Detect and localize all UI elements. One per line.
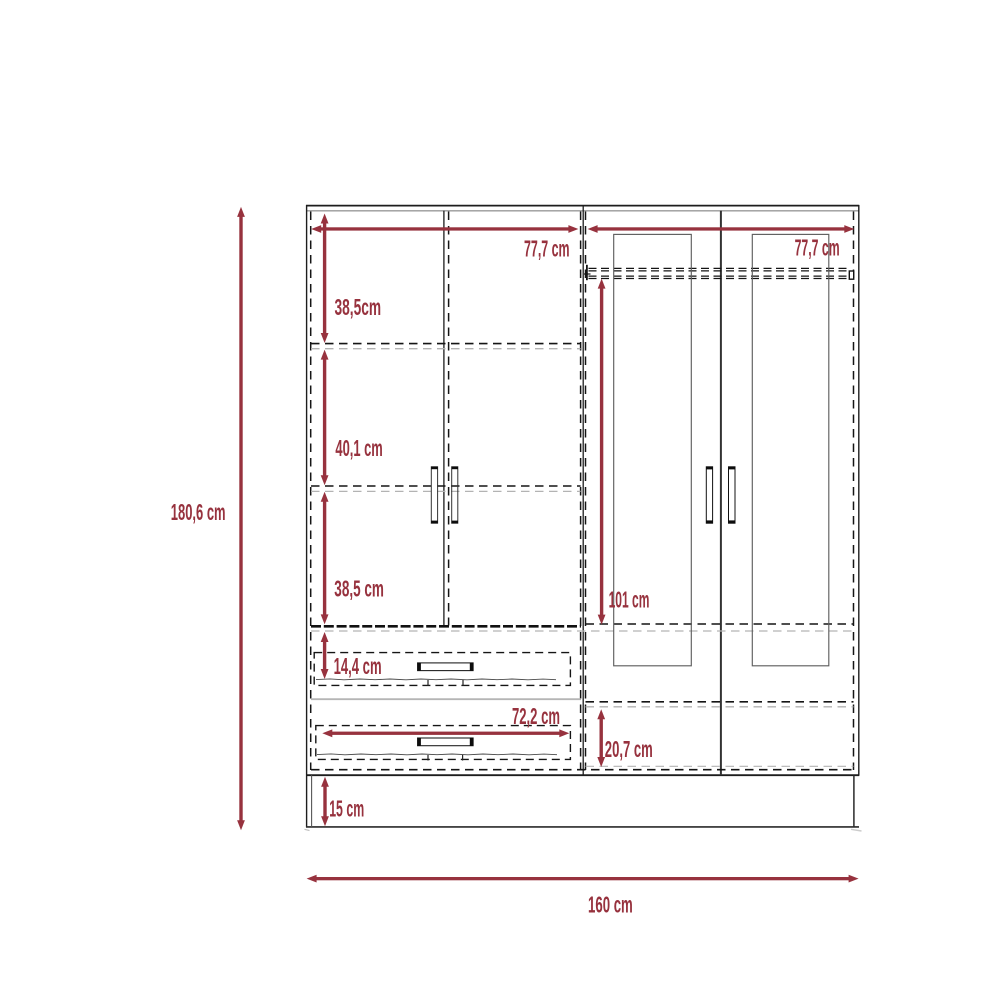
svg-text:160 cm: 160 cm bbox=[588, 891, 633, 917]
svg-text:14,4 cm: 14,4 cm bbox=[334, 653, 382, 679]
svg-text:38,5cm: 38,5cm bbox=[335, 294, 382, 320]
svg-text:20,7 cm: 20,7 cm bbox=[605, 736, 653, 762]
svg-text:77,7 cm: 77,7 cm bbox=[524, 235, 570, 261]
svg-text:72,2 cm: 72,2 cm bbox=[512, 703, 560, 729]
svg-text:40,1 cm: 40,1 cm bbox=[335, 435, 382, 461]
svg-text:101 cm: 101 cm bbox=[609, 586, 650, 612]
svg-text:15 cm: 15 cm bbox=[329, 796, 364, 822]
svg-text:180,6 cm: 180,6 cm bbox=[171, 499, 226, 525]
svg-text:77,7 cm: 77,7 cm bbox=[795, 234, 840, 260]
svg-text:38,5 cm: 38,5 cm bbox=[334, 576, 384, 602]
